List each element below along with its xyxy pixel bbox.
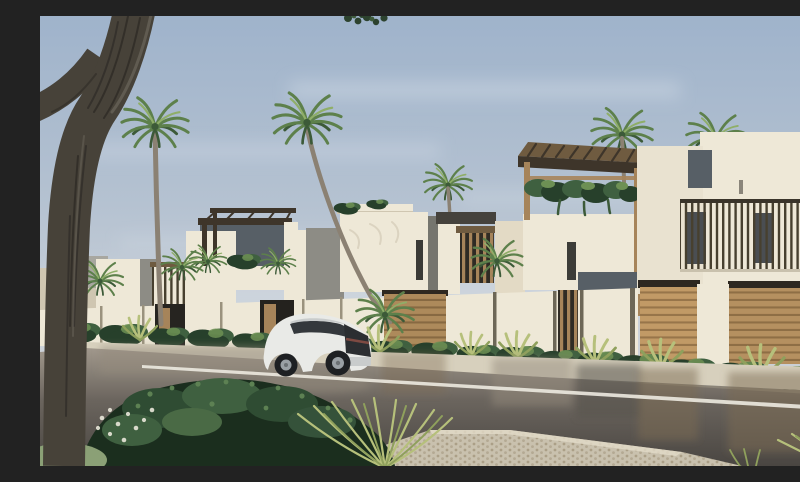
window-slit (416, 240, 423, 280)
louver-screen-mid (460, 233, 494, 283)
villa-street-render (40, 16, 800, 466)
louver-rail (680, 199, 800, 203)
villa-4-louver-house (637, 132, 800, 368)
suv-wheel-front (275, 354, 298, 377)
render-scene (40, 16, 800, 466)
parapet-recess (688, 150, 712, 188)
suv-wheel-rear (326, 351, 351, 376)
louver-frame (456, 226, 498, 233)
louver-screen-band (680, 203, 800, 269)
flat-roof-canopy (436, 212, 496, 224)
leaf-cluster-top (344, 16, 388, 25)
wall-timber-section (558, 290, 578, 360)
window-slit (567, 242, 576, 280)
terrace-parapet (188, 266, 288, 290)
